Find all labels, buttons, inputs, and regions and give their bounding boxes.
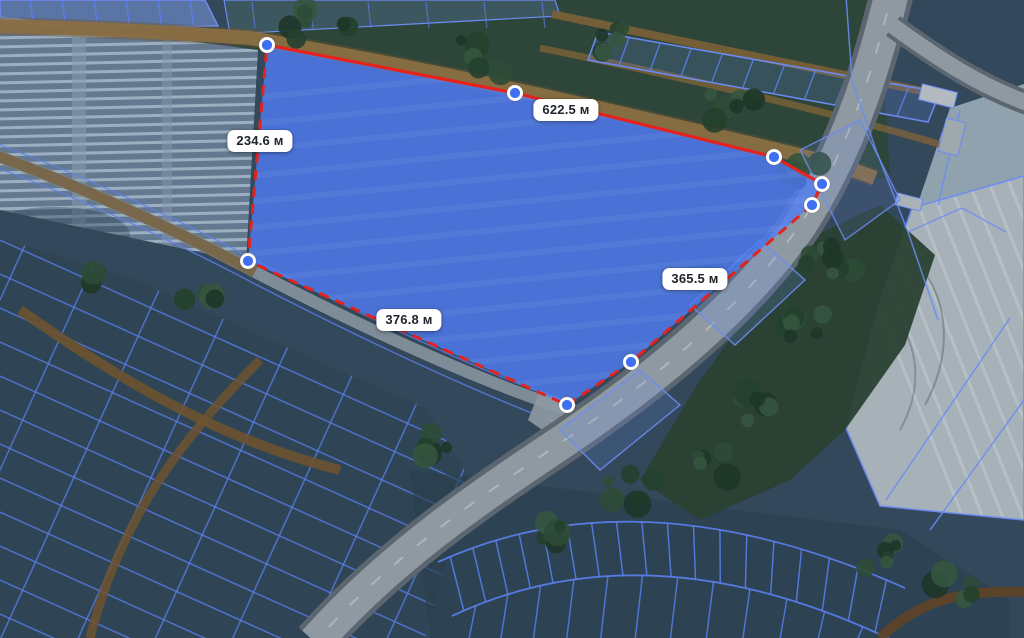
vertex-marker[interactable] [240, 253, 256, 269]
vertex-marker[interactable] [814, 176, 830, 192]
vertex-marker[interactable] [623, 354, 639, 370]
vertex-marker[interactable] [804, 197, 820, 213]
vertex-marker[interactable] [259, 37, 275, 53]
vertex-marker[interactable] [766, 149, 782, 165]
vertex-marker[interactable] [507, 85, 523, 101]
map-canvas[interactable]: 234.6 м622.5 м365.5 м376.8 м [0, 0, 1024, 638]
vertex-marker[interactable] [559, 397, 575, 413]
